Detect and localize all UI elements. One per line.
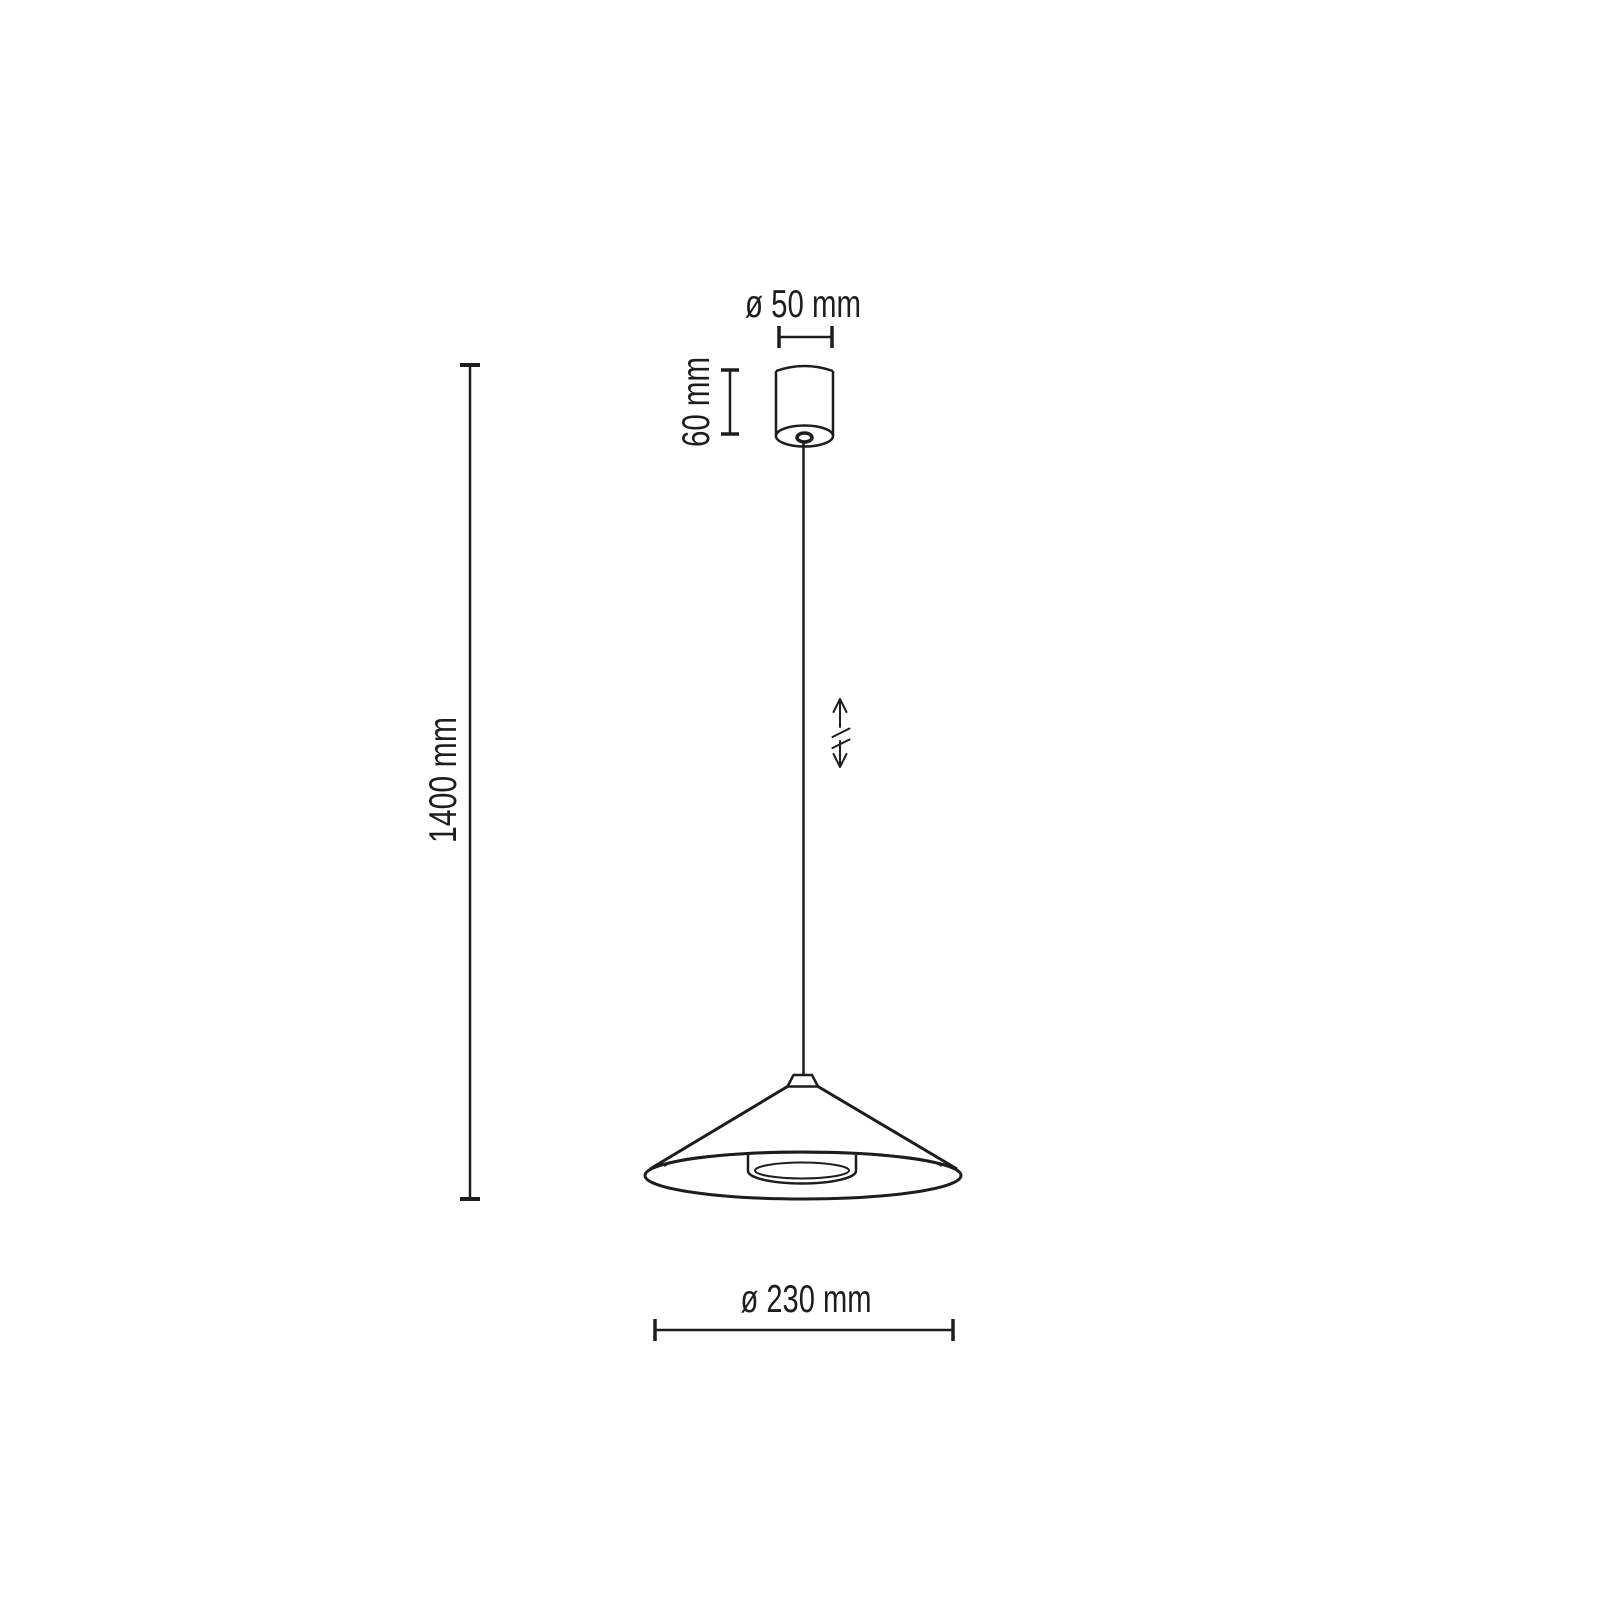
canopy-diameter-label: ø 50 mm <box>745 283 861 326</box>
shade-diameter-label: ø 230 mm <box>741 1278 872 1321</box>
diffuser-lens-outer-arc <box>748 1171 856 1184</box>
shade-top-cap <box>788 1075 819 1087</box>
canopy-diameter-dimension: ø 50 mm <box>745 283 861 348</box>
diffuser-lens-inner-ellipse <box>755 1163 849 1179</box>
canopy-height-dimension: 60 mm <box>675 357 739 447</box>
drawing-root: ø 50 mm 60 mm 1400 mm <box>422 283 961 1341</box>
shade-diameter-dimension: ø 230 mm <box>655 1278 953 1341</box>
lamp-shade <box>645 1075 961 1199</box>
overall-height-dimension: 1400 mm <box>422 365 480 1199</box>
overall-height-label: 1400 mm <box>422 717 465 843</box>
canopy-top-arc <box>776 366 833 371</box>
break-slash-upper <box>833 729 850 738</box>
canopy-height-label: 60 mm <box>675 357 718 447</box>
shade-inner-rim-arc <box>664 1152 942 1166</box>
cable-grommet-icon <box>797 433 812 442</box>
drawing-svg: ø 50 mm 60 mm 1400 mm <box>0 0 1600 1600</box>
ceiling-canopy <box>776 366 833 447</box>
pendant-lamp-dimension-drawing: ø 50 mm 60 mm 1400 mm <box>0 0 1600 1600</box>
height-adjustable-icon <box>833 699 850 767</box>
